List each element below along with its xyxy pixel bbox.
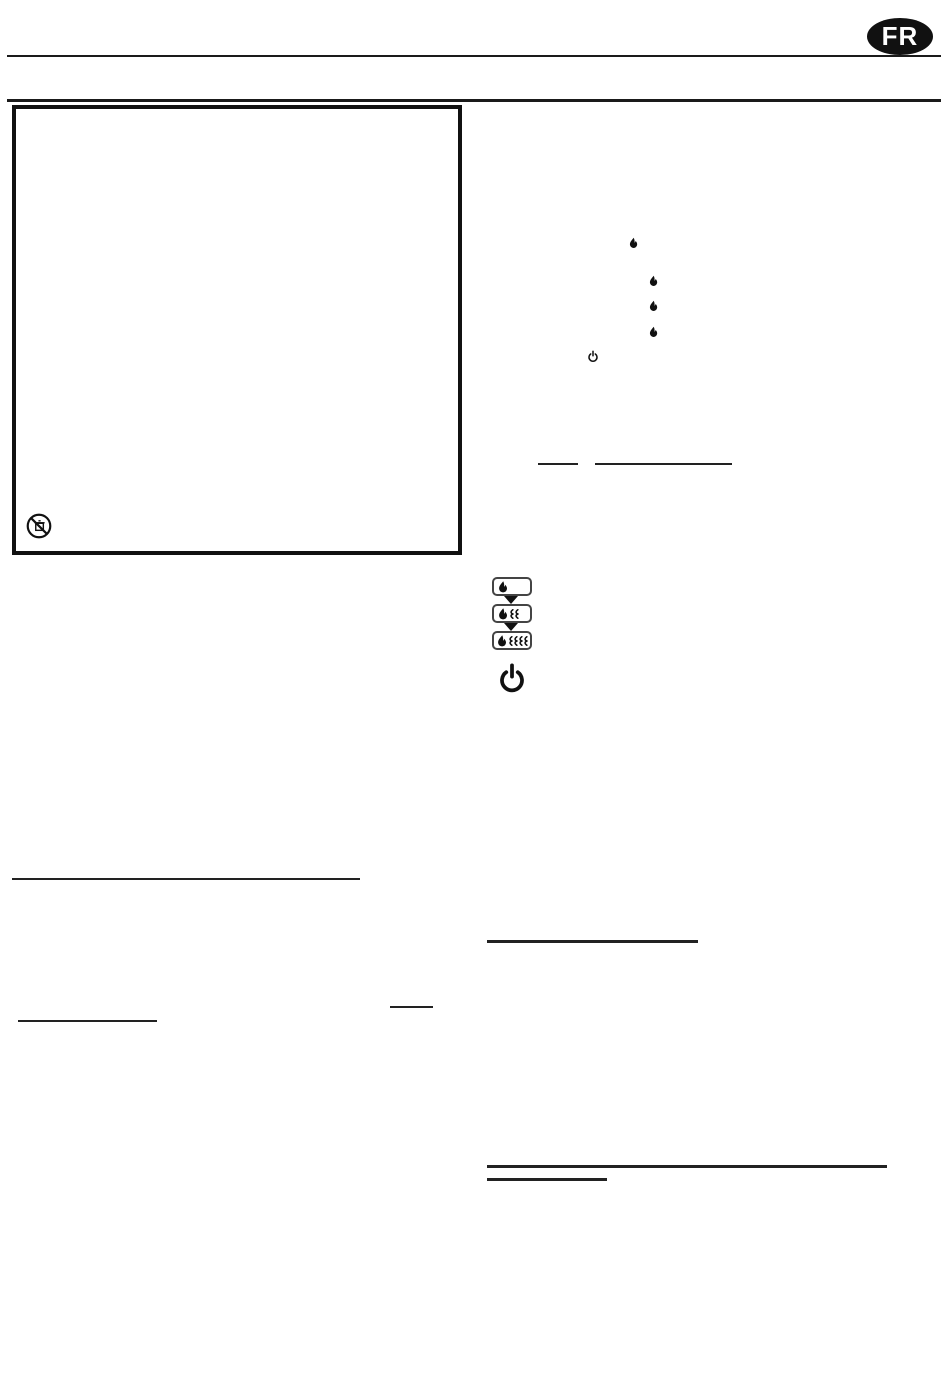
arrow-down-icon [504, 623, 518, 631]
heat-level-3-button [492, 631, 532, 650]
underline-segment [390, 1006, 433, 1008]
flame-icon [648, 300, 659, 312]
underline-segment [595, 463, 732, 465]
underline-segment [487, 940, 698, 943]
flame-icon [497, 608, 509, 620]
power-icon [587, 350, 599, 363]
heat-wave-icon [514, 609, 519, 619]
arrow-down-icon [504, 596, 518, 604]
flame-icon [496, 635, 508, 647]
underline-segment [487, 1178, 607, 1181]
flame-icon [628, 237, 639, 249]
header-rule-top [7, 55, 941, 57]
flame-icon [648, 275, 659, 287]
heat-wave-icon [523, 636, 528, 646]
flame-icon [648, 326, 659, 338]
header-rule-main [7, 99, 941, 102]
no-trash-disposal-icon [26, 513, 52, 539]
power-icon [497, 663, 527, 694]
heat-level-2-button [492, 604, 532, 623]
language-badge-label: FR [882, 21, 919, 52]
underline-segment [538, 463, 578, 465]
underline-segment [18, 1020, 157, 1022]
language-badge: FR [867, 18, 933, 55]
safety-warning-box [12, 105, 462, 555]
underline-segment [12, 878, 360, 880]
manual-page: FR [0, 0, 950, 1387]
heat-level-1-button [492, 577, 532, 596]
underline-segment [487, 1165, 887, 1168]
flame-icon [497, 581, 509, 593]
